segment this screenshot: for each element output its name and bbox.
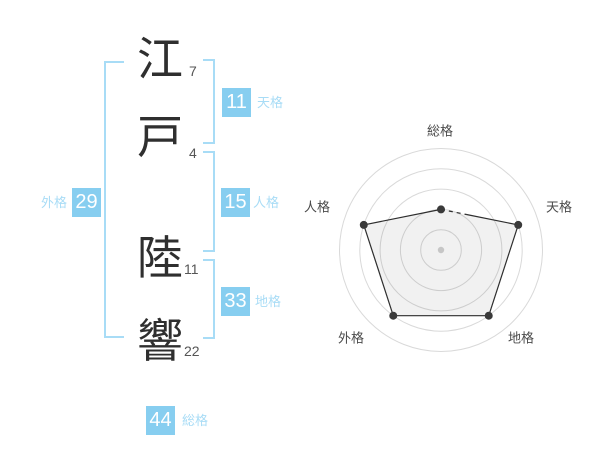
radar-axis-label: 地格 — [508, 331, 534, 346]
radar-data-point — [485, 312, 493, 320]
radar-data-point — [360, 221, 368, 229]
chikaku-bracket-tick-bottom — [203, 337, 215, 339]
gaikaku-bracket-line — [104, 61, 106, 338]
gaikaku-bracket-tick-top — [104, 61, 124, 63]
stroke-count-4: 22 — [184, 344, 200, 358]
jinkaku-label: 人格 — [253, 195, 279, 210]
radar-data-point — [389, 312, 397, 320]
tenkaku-label: 天格 — [257, 95, 283, 110]
soukaku-badge: 44 — [146, 406, 175, 435]
soukaku-label: 総格 — [182, 413, 208, 428]
name-character-2: 戸 — [134, 114, 186, 160]
jinkaku-bracket-tick-bottom — [203, 250, 215, 252]
jinkaku-badge: 15 — [221, 188, 250, 217]
tenkaku-bracket-tick-bottom — [203, 142, 215, 144]
jinkaku-bracket-tick-top — [203, 151, 215, 153]
gaikaku-badge: 29 — [72, 188, 101, 217]
chikaku-bracket-line — [213, 259, 215, 339]
name-character-1: 江 — [134, 36, 186, 82]
radar-axis-label: 天格 — [546, 200, 572, 215]
chikaku-badge: 33 — [221, 287, 250, 316]
gaikaku-bracket-tick-bottom — [104, 336, 124, 338]
name-character-4: 響 — [134, 318, 186, 364]
name-character-3: 陸 — [134, 235, 186, 281]
radar-center-dot — [438, 247, 444, 253]
stroke-count-2: 4 — [189, 146, 197, 160]
tenkaku-badge: 11 — [222, 88, 251, 117]
radar-data-area — [364, 209, 518, 315]
fortune-radar-chart: 総格天格地格外格人格 — [295, 110, 585, 360]
radar-data-point — [437, 205, 445, 213]
chikaku-label: 地格 — [255, 294, 281, 309]
radar-axis-label: 人格 — [304, 200, 330, 215]
name-fortune-result-screen: 江 戸 陸 響 7 4 11 22 11 天格 15 人格 33 地格 外格 2… — [0, 0, 600, 470]
radar-data-point — [514, 221, 522, 229]
jinkaku-bracket-line — [213, 151, 215, 252]
chikaku-bracket-tick-top — [203, 259, 215, 261]
tenkaku-bracket-tick-top — [203, 59, 215, 61]
tenkaku-bracket-line — [213, 59, 215, 144]
gaikaku-label: 外格 — [30, 195, 67, 210]
stroke-count-1: 7 — [189, 64, 197, 78]
radar-axis-label: 外格 — [338, 331, 364, 346]
stroke-count-3: 11 — [184, 262, 199, 276]
radar-axis-label: 総格 — [427, 124, 453, 139]
